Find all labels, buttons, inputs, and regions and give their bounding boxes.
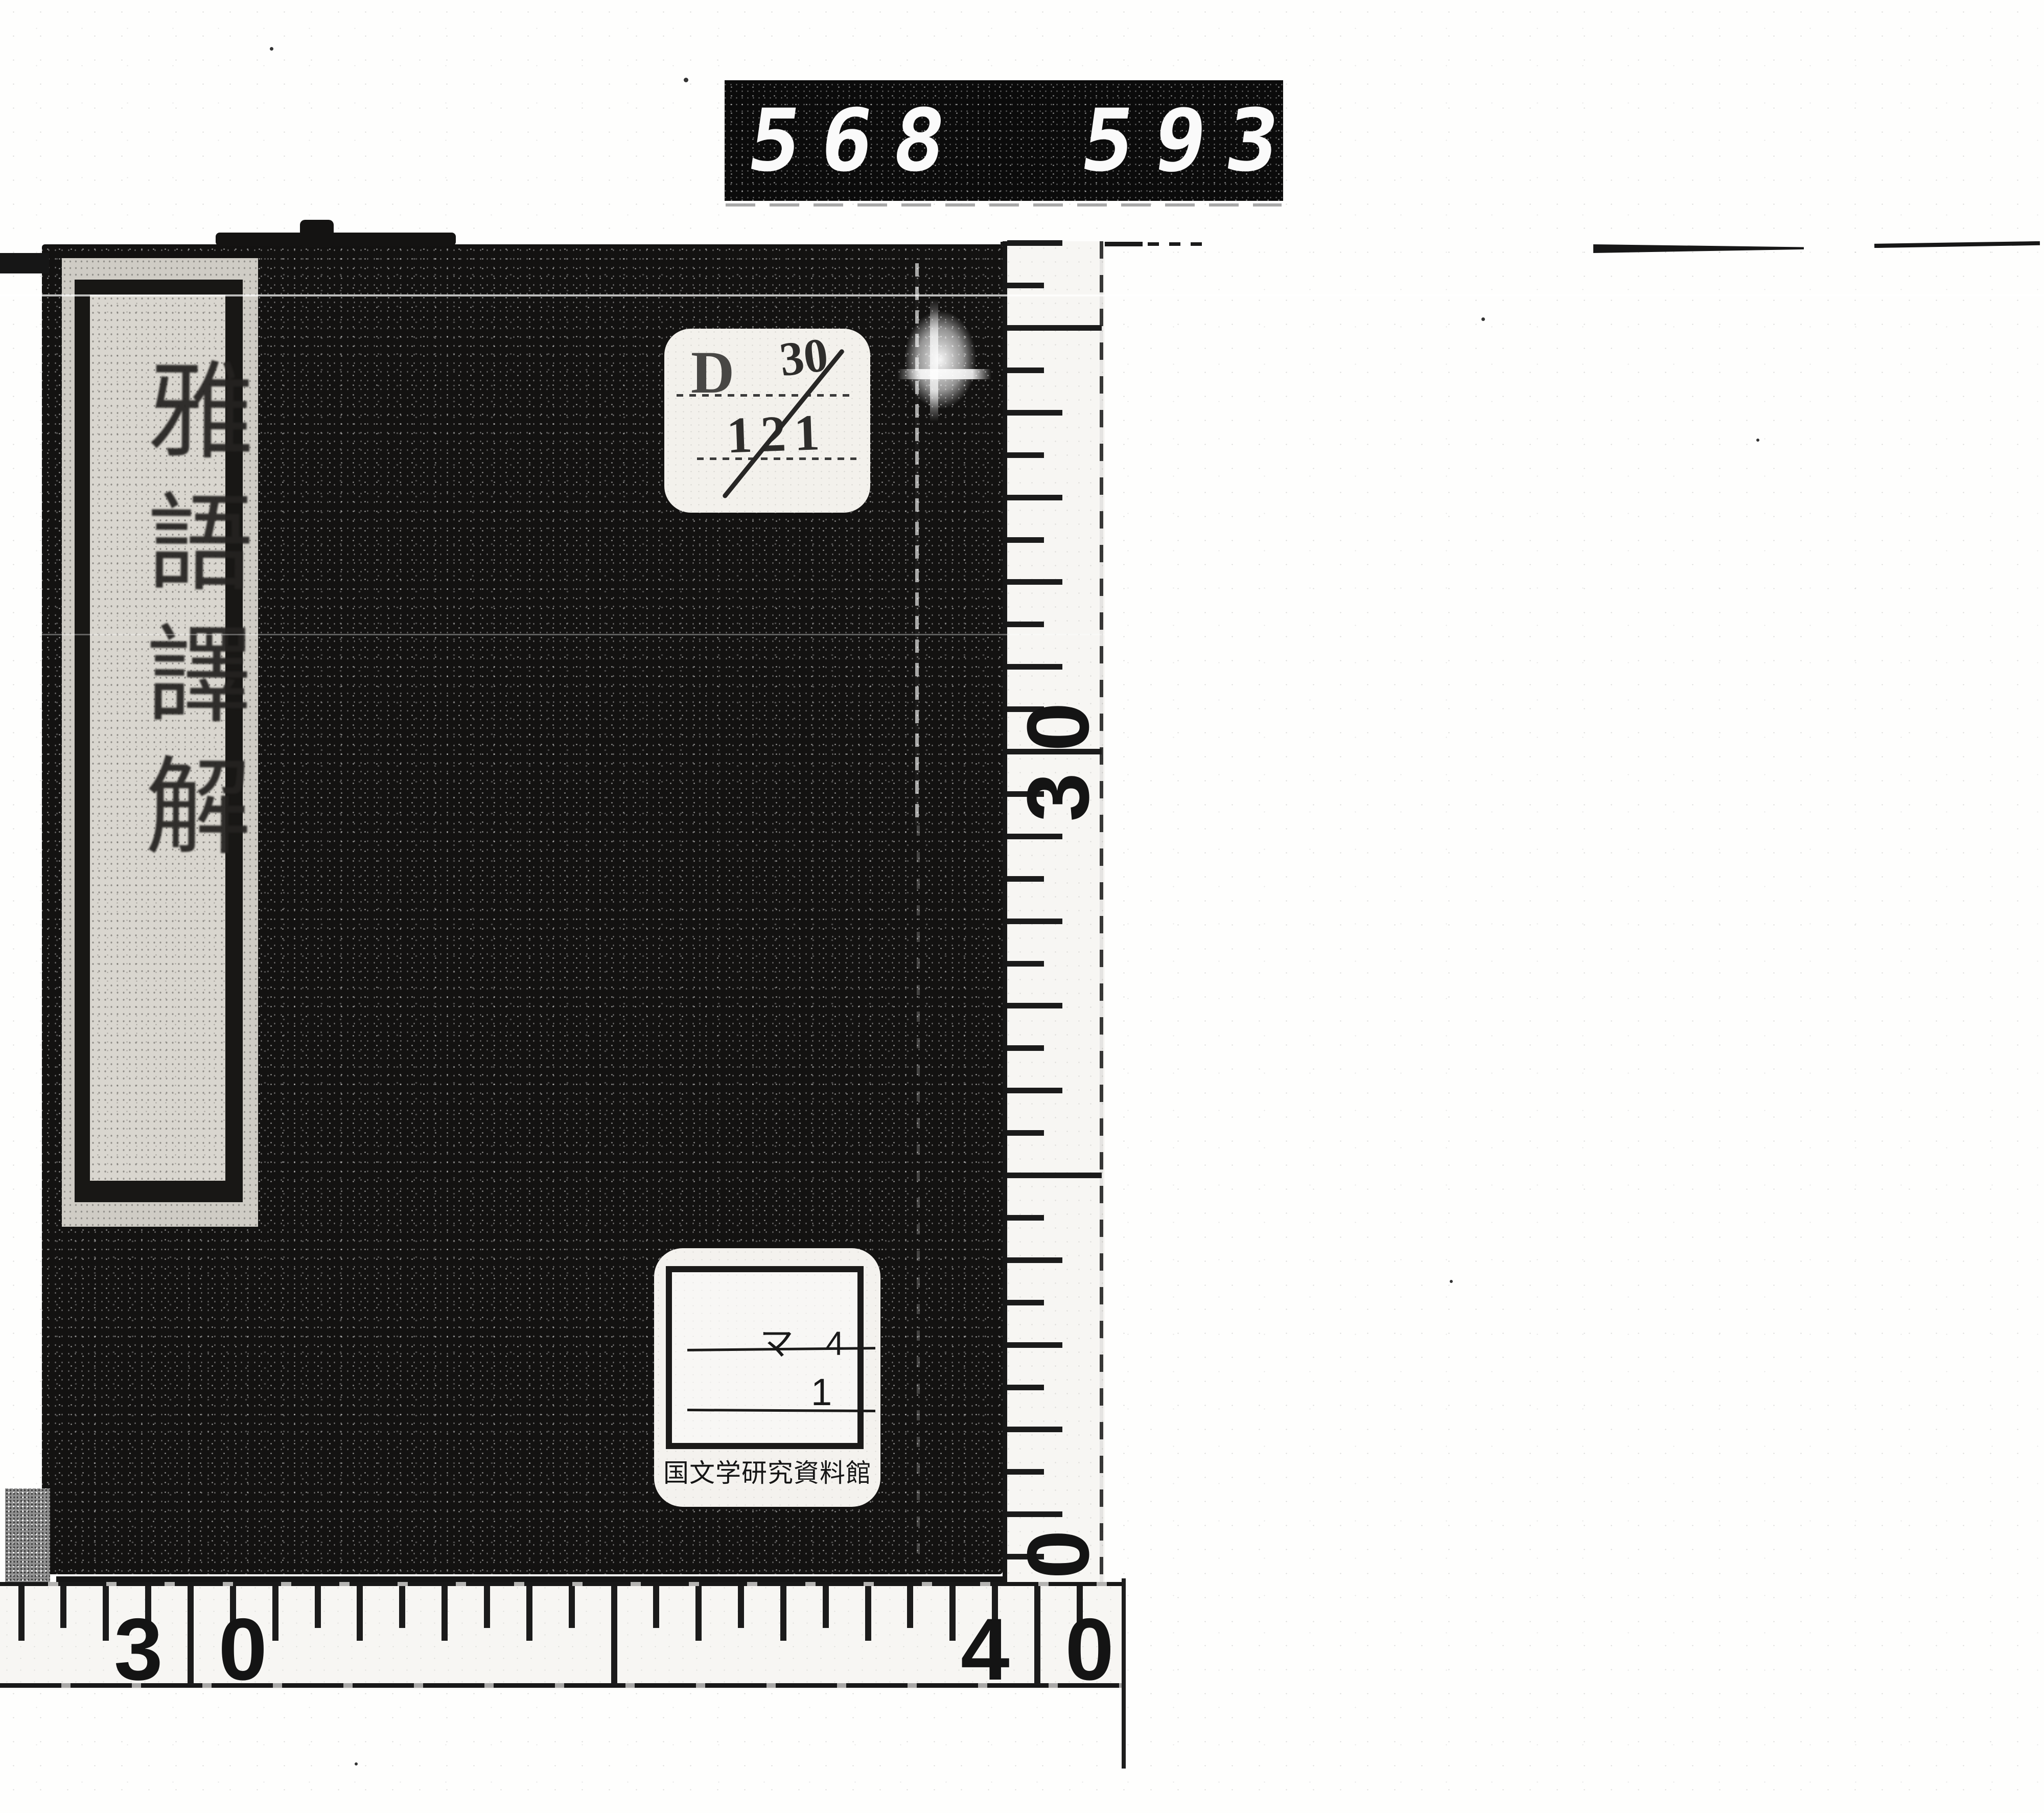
paper-speck: [270, 47, 273, 51]
holding-label: マ 4 1 国文学研究資料館: [654, 1248, 880, 1507]
ruler-tick: [399, 1586, 405, 1628]
cover-top-edge-line: [1148, 242, 1209, 246]
ruler-tick: [315, 1586, 321, 1628]
ruler-tick: [1007, 876, 1044, 882]
page-edge-mark: [0, 253, 49, 273]
scan-artifact-line: [0, 634, 2044, 635]
paper-speck: [355, 1762, 358, 1765]
ruler-tick: [780, 1586, 786, 1641]
cover-edge-fray: [300, 220, 334, 247]
paper-speck: [1756, 439, 1759, 442]
ruler-tick: [1007, 1300, 1044, 1305]
sticker-rule-line: [677, 394, 854, 397]
vertical-ruler: 300: [1003, 241, 1105, 1586]
holding-label-grid: マ 4 1: [666, 1266, 864, 1449]
ruler-tick: [653, 1586, 659, 1628]
ruler-tick: [1007, 1045, 1044, 1051]
ruler-tick: [1007, 452, 1044, 458]
ruler-tick: [442, 1586, 448, 1641]
holding-call-row2: 1: [811, 1370, 832, 1414]
ruler-tick: [1007, 325, 1102, 331]
paper-speck: [1450, 1280, 1453, 1283]
ruler-tick: [1007, 240, 1062, 246]
ruler-tick: [1007, 1342, 1062, 1348]
ruler-tick: [1007, 1130, 1044, 1136]
ruler-tick: [949, 1586, 956, 1641]
ruler-tick: [1007, 622, 1044, 627]
paper-speck: [684, 78, 688, 82]
ruler-edge-line: [0, 1582, 1123, 1586]
counter-board-shadow: [726, 203, 1282, 206]
stray-scan-line: [1593, 244, 1804, 253]
holding-call-row1: マ 4: [760, 1316, 855, 1365]
ruler-tick: [484, 1586, 490, 1628]
scan-artifact-line: [0, 294, 2044, 296]
ruler-tick: [1007, 1215, 1044, 1221]
ruler-tick: [695, 1586, 702, 1641]
ruler-tick: [1007, 579, 1062, 585]
paper-speck: [1481, 317, 1485, 321]
ruler-tick: [611, 1586, 617, 1685]
title-slip-frame: 雅語譯解: [75, 280, 243, 1202]
title-calligraphy: 雅語譯解: [127, 355, 250, 1204]
ruler-tick: [526, 1586, 532, 1641]
ruler-tick: [1007, 1427, 1062, 1432]
ruler-tick: [569, 1586, 575, 1628]
title-slip: 雅語譯解: [62, 258, 258, 1227]
holding-grid-line: [687, 1409, 875, 1412]
cover-bottom-edge-line: [56, 1576, 1105, 1582]
horizontal-ruler: 3040: [0, 1582, 1123, 1689]
scanned-book-cover-page: 568 593 雅語譯解 D 30 121 マ 4 1 国文学研究資料館: [0, 0, 2044, 1813]
holding-institution-name: 国文学研究資料館: [660, 1453, 875, 1489]
ruler-edge-line: [1003, 241, 1007, 1586]
counter-left-number: 568: [742, 89, 973, 192]
ruler-tick: [18, 1586, 25, 1641]
ruler-edge-line: [1100, 241, 1103, 1586]
counter-right-number: 593: [1075, 89, 1306, 192]
ruler-tick: [1007, 410, 1062, 416]
ruler-tick: [1007, 368, 1044, 373]
scan-glare-blob: [890, 291, 990, 428]
sticker-rule-line: [697, 457, 856, 460]
film-frame-counter-board: 568 593: [725, 80, 1283, 201]
ruler-edge-extension-line: [1122, 1578, 1126, 1769]
ruler-tick: [357, 1586, 363, 1641]
stray-scan-line: [1874, 241, 2040, 248]
ruler-tick: [1007, 283, 1044, 288]
ruler-tick: [1007, 1469, 1044, 1475]
ruler-tick: [1007, 1385, 1044, 1390]
ruler-tick: [738, 1586, 744, 1628]
scan-glare-streak: [930, 299, 938, 422]
ruler-tick: [1007, 961, 1044, 967]
ruler-tick: [272, 1586, 278, 1641]
ruler-tick: [1007, 919, 1062, 924]
ruler-tick: [823, 1586, 829, 1628]
ruler-tick: [1007, 495, 1062, 500]
scan-gray-artifact: [5, 1488, 50, 1583]
ruler-number: 30: [114, 1605, 267, 1693]
call-number-sticker: D 30 121: [664, 329, 870, 513]
ruler-tick: [60, 1586, 66, 1628]
ruler-number: 0: [1015, 1498, 1102, 1590]
ruler-tick: [1007, 1003, 1062, 1008]
scan-glare-streak: [897, 369, 991, 379]
spine-crease-highlight: [917, 825, 920, 1572]
ruler-tick: [1007, 1173, 1102, 1178]
ruler-tick: [1007, 1257, 1062, 1263]
ruler-tick: [865, 1586, 871, 1641]
ruler-tick: [1007, 1088, 1062, 1093]
ruler-number: 40: [961, 1605, 1114, 1693]
ruler-number: 30: [1015, 659, 1102, 843]
sticker-letter: D: [691, 338, 734, 407]
ruler-tick: [907, 1586, 913, 1628]
ruler-tick: [103, 1586, 109, 1641]
cover-edge-fray: [216, 233, 456, 246]
ruler-tick: [1007, 537, 1044, 543]
